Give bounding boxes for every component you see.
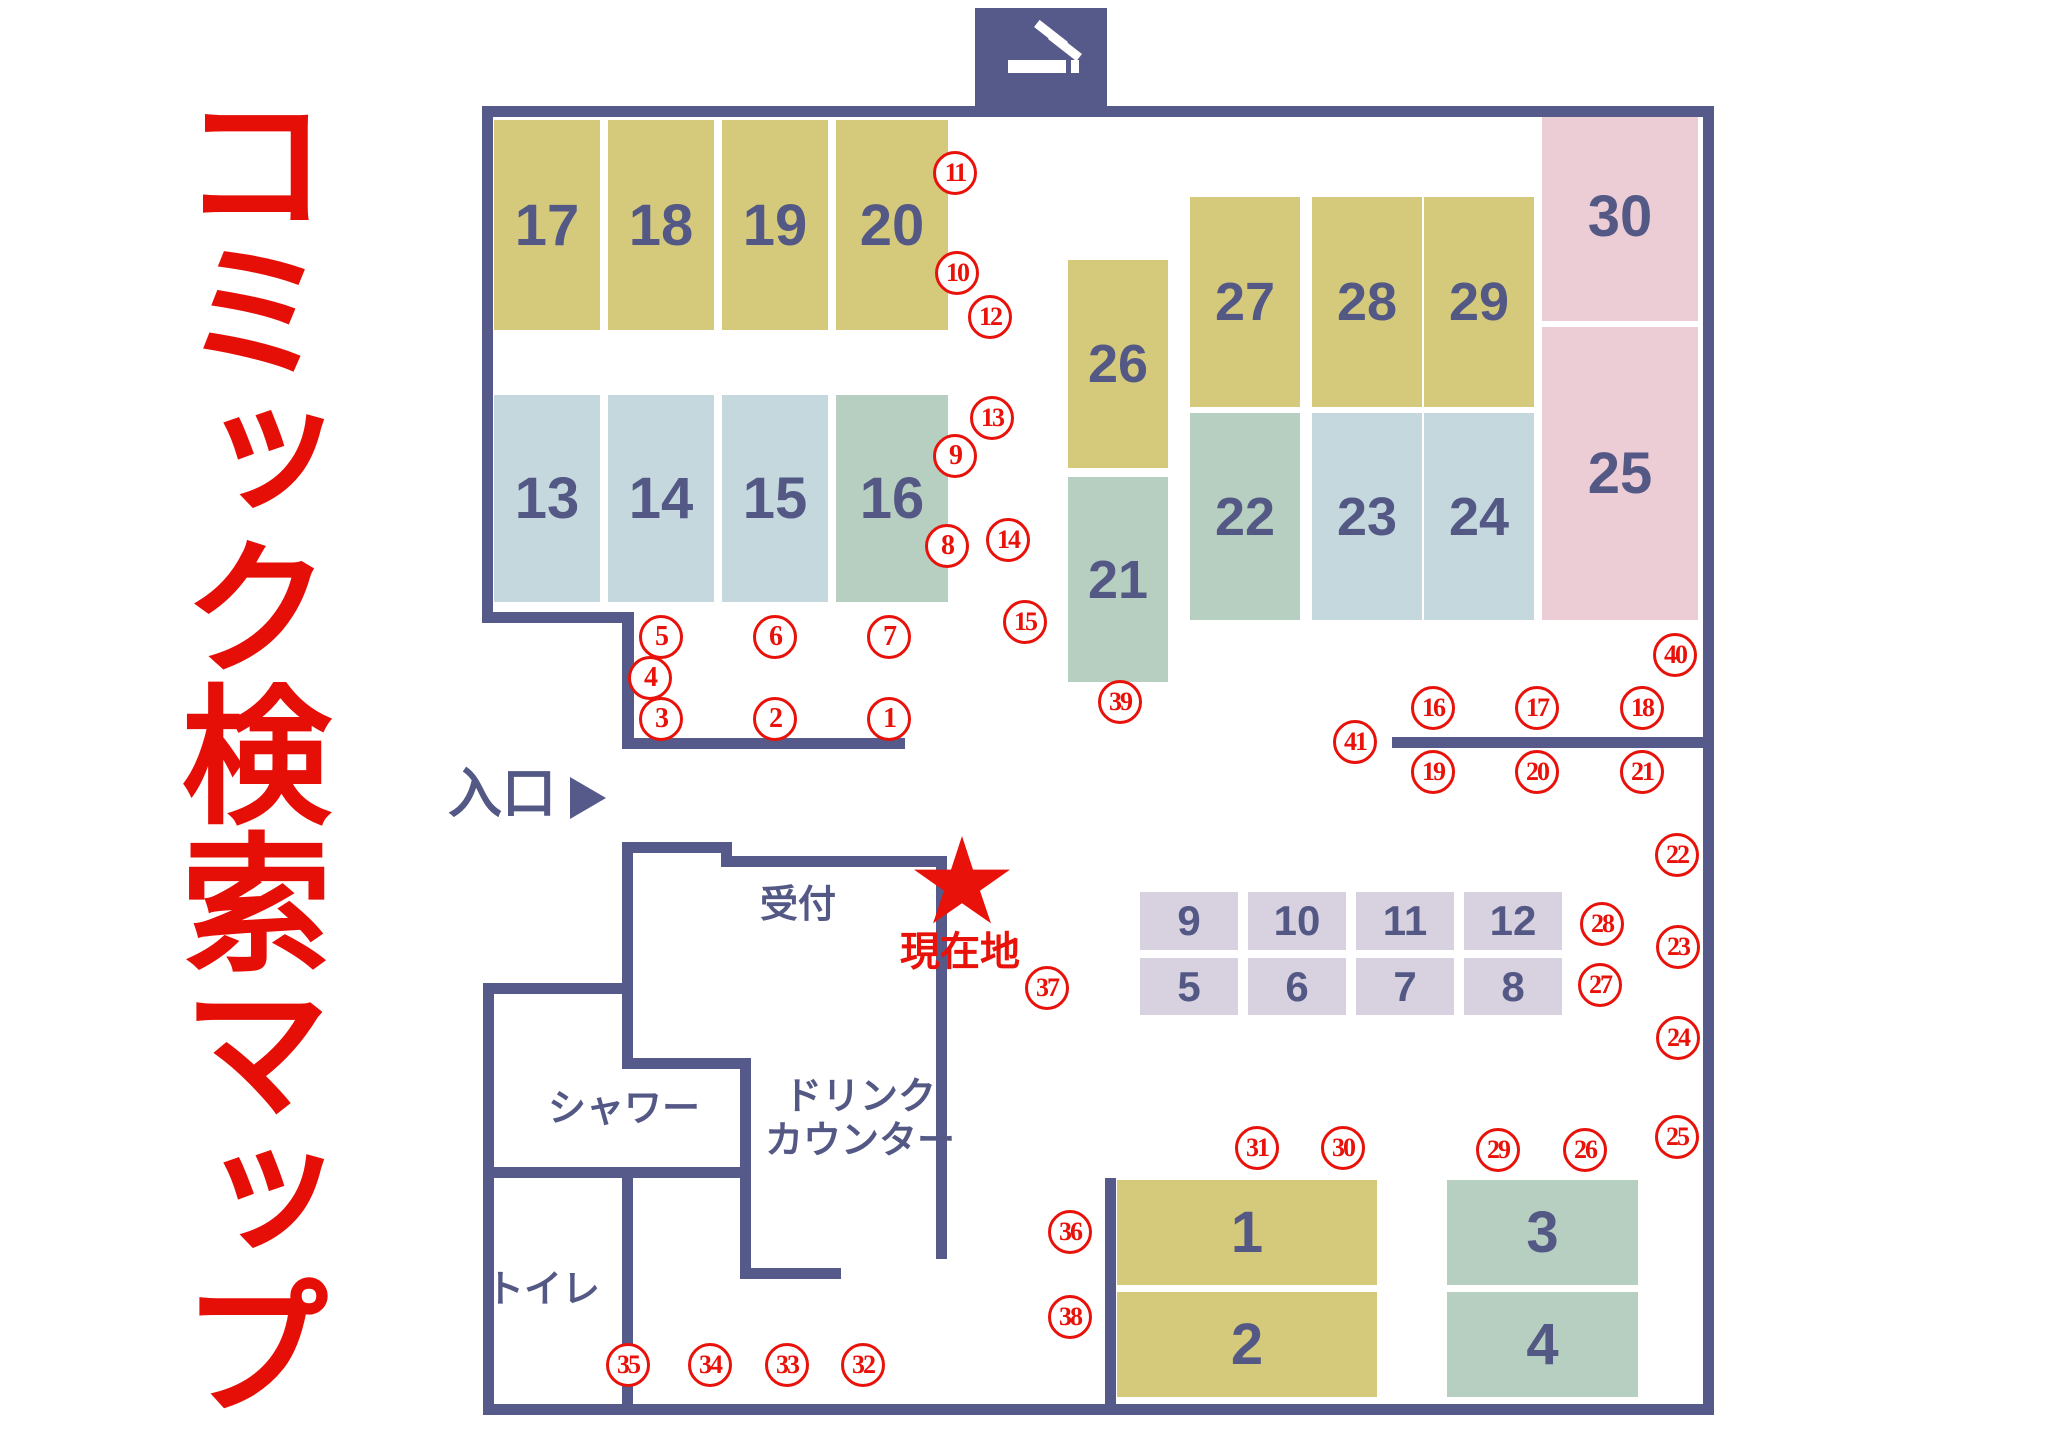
label-current-location: 現在地 [900,929,1020,975]
wall [622,842,732,853]
marker-24: 24 [1656,1016,1700,1060]
marker-39: 39 [1098,680,1142,724]
shelf-16: 16 [836,395,948,602]
marker-13: 13 [970,396,1014,440]
wall [1105,1178,1116,1415]
shelf-21: 21 [1068,477,1168,682]
smoke-icon [1048,32,1082,61]
shelf-23: 23 [1312,413,1422,620]
shelf-30: 30 [1542,112,1698,321]
shelf-5: 5 [1140,958,1238,1015]
marker-32: 32 [841,1343,885,1387]
marker-25: 25 [1655,1115,1699,1159]
shelf-4: 4 [1447,1292,1638,1397]
marker-12: 12 [968,295,1012,339]
marker-29: 29 [1476,1128,1520,1172]
shelf-29: 29 [1424,197,1534,407]
wall [483,983,633,994]
marker-22: 22 [1655,833,1699,877]
marker-36: 36 [1048,1210,1092,1254]
shelf-27: 27 [1190,197,1300,407]
label-drink-counter: ドリンク カウンター [755,1076,965,1163]
comic-search-map-page: コミック検索マップ 171819201314151626272829302122… [0,0,2048,1444]
shelf-25: 25 [1542,327,1698,620]
marker-19: 19 [1411,750,1455,794]
marker-15: 15 [1003,600,1047,644]
marker-27: 27 [1578,963,1622,1007]
label-toilet: トイレ [486,1269,600,1313]
marker-1: 1 [867,697,911,741]
shelf-11: 11 [1356,892,1454,950]
marker-30: 30 [1321,1126,1365,1170]
marker-2: 2 [753,697,797,741]
shelf-9: 9 [1140,892,1238,950]
shelf-17: 17 [494,120,600,330]
marker-21: 21 [1620,750,1664,794]
wall [483,1404,1714,1415]
marker-16: 16 [1411,686,1455,730]
shelf-28: 28 [1312,197,1422,407]
shelf-8: 8 [1464,958,1562,1015]
marker-18: 18 [1620,686,1664,730]
cigarette-icon [1008,60,1066,73]
marker-17: 17 [1515,686,1559,730]
shelf-3: 3 [1447,1180,1638,1285]
marker-33: 33 [765,1343,809,1387]
shelf-19: 19 [722,120,828,330]
wall [622,842,633,1069]
marker-5: 5 [639,615,683,659]
wall [482,106,1714,117]
marker-28: 28 [1580,902,1624,946]
marker-26: 26 [1563,1128,1607,1172]
entrance-arrow-icon [570,777,606,819]
wall [1392,737,1704,748]
marker-38: 38 [1048,1295,1092,1339]
marker-14: 14 [986,518,1030,562]
marker-7: 7 [867,615,911,659]
floor-map: 1718192013141516262728293021222324259101… [0,0,2048,1444]
marker-11: 11 [933,151,977,195]
label-entrance: 入口 [448,763,606,825]
label-shower: シャワー [548,1088,700,1132]
wall [482,106,493,623]
smoking-sign [975,8,1107,107]
marker-10: 10 [935,251,979,295]
shelf-7: 7 [1356,958,1454,1015]
shelf-14: 14 [608,395,714,602]
marker-4: 4 [628,656,672,700]
marker-3: 3 [639,697,683,741]
marker-37: 37 [1025,966,1069,1010]
current-location-star [912,836,1012,932]
marker-20: 20 [1515,750,1559,794]
shelf-18: 18 [608,120,714,330]
wall [482,612,634,623]
wall [721,856,947,867]
shelf-22: 22 [1190,413,1300,620]
marker-23: 23 [1656,925,1700,969]
wall [483,1167,751,1178]
wall [740,1268,841,1279]
shelf-26: 26 [1068,260,1168,468]
label-reception: 受付 [760,884,836,928]
marker-35: 35 [606,1343,650,1387]
shelf-12: 12 [1464,892,1562,950]
marker-31: 31 [1235,1126,1279,1170]
shelf-2: 2 [1117,1292,1377,1397]
marker-41: 41 [1333,720,1377,764]
marker-8: 8 [925,524,969,568]
wall [483,983,494,1415]
wall [1703,106,1714,1415]
marker-34: 34 [688,1343,732,1387]
shelf-6: 6 [1248,958,1346,1015]
marker-40: 40 [1653,633,1697,677]
shelf-24: 24 [1424,413,1534,620]
shelf-10: 10 [1248,892,1346,950]
shelf-15: 15 [722,395,828,602]
wall [740,1058,751,1279]
shelf-20: 20 [836,120,948,330]
marker-6: 6 [753,615,797,659]
shelf-13: 13 [494,395,600,602]
cigarette-tip-icon [1071,60,1079,73]
shelf-1: 1 [1117,1180,1377,1285]
marker-9: 9 [933,434,977,478]
wall [622,1058,751,1069]
